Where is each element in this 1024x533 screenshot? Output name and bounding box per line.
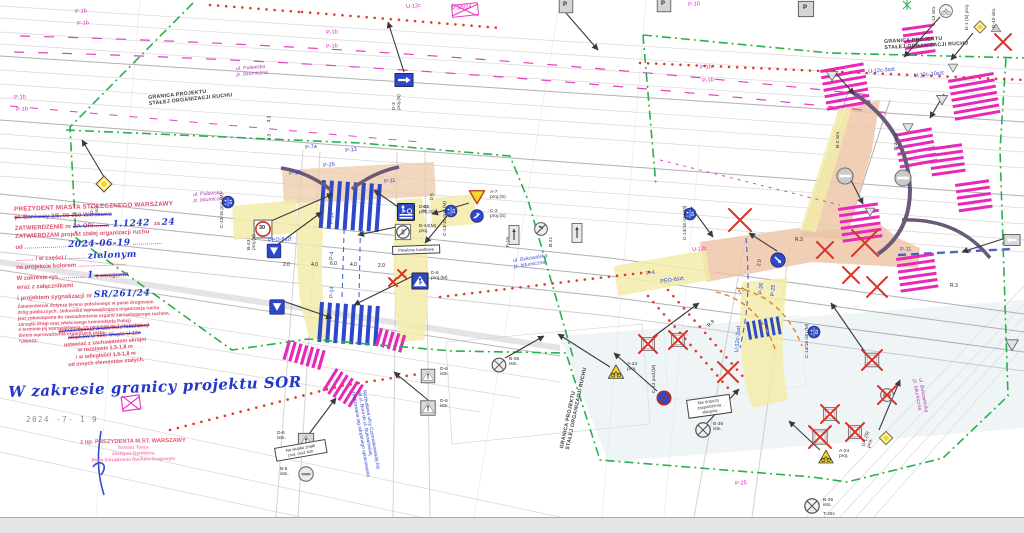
b35-sign-icon	[657, 391, 671, 405]
c2-sign-icon	[471, 210, 484, 223]
b44-sign-icon	[395, 224, 410, 239]
b2-sign-icon	[837, 168, 853, 184]
signature-block: z up. PREZYDENTA M.ST. WARSZAWYTomasz To…	[58, 437, 208, 464]
d6g-sign-icon	[298, 433, 313, 448]
c9-sign-icon	[771, 253, 785, 267]
d1-sign-icon	[974, 21, 987, 34]
f19-sign-icon	[509, 226, 519, 245]
d18-sign-icon	[559, 0, 573, 13]
d6m-sign-icon	[412, 273, 428, 289]
c1316-sign-icon	[684, 208, 696, 220]
d6g-sign-icon	[421, 401, 435, 415]
p15-sign-icon	[270, 300, 284, 314]
b36-sign-icon	[805, 499, 819, 513]
f19-sign-icon	[572, 224, 582, 243]
d1-sign-icon	[96, 176, 112, 192]
garrow-sign-icon	[1004, 235, 1020, 246]
d3-sign-icon	[395, 74, 413, 87]
date-stamp: 2024 -7- 1 9	[26, 415, 98, 424]
d6b-sign-icon	[398, 204, 415, 221]
d18-sign-icon	[798, 1, 813, 16]
a7g-sign-icon	[948, 64, 958, 72]
c1316-sign-icon	[808, 326, 820, 338]
d6g-sign-icon	[421, 369, 435, 383]
b36-sign-icon	[696, 423, 710, 437]
gtri-sign-icon	[991, 24, 1001, 32]
plan-sheet: P-1bP-1bP-1bP-1bP-1bP-1bU-12cP-25/24P-1b…	[0, 0, 1024, 517]
gcirc-sign-icon	[299, 467, 313, 481]
b36-sign-icon	[492, 358, 506, 372]
sidewalk-band	[560, 300, 1024, 462]
c1316-sign-icon	[445, 205, 457, 217]
b21-sign-icon	[535, 223, 548, 236]
a24-sign-icon	[819, 450, 833, 463]
d18-sign-icon	[657, 0, 671, 12]
drawing-viewport[interactable]: P-1bP-1bP-1bP-1bP-1bP-1bU-12cP-25/24P-1b…	[0, 0, 1024, 533]
c13g-sign-icon	[940, 5, 953, 18]
p15-sign-icon	[267, 244, 281, 258]
b2-sign-icon	[895, 170, 911, 186]
green-asterisk	[903, 0, 911, 10]
page-edge-bar	[0, 517, 1024, 533]
